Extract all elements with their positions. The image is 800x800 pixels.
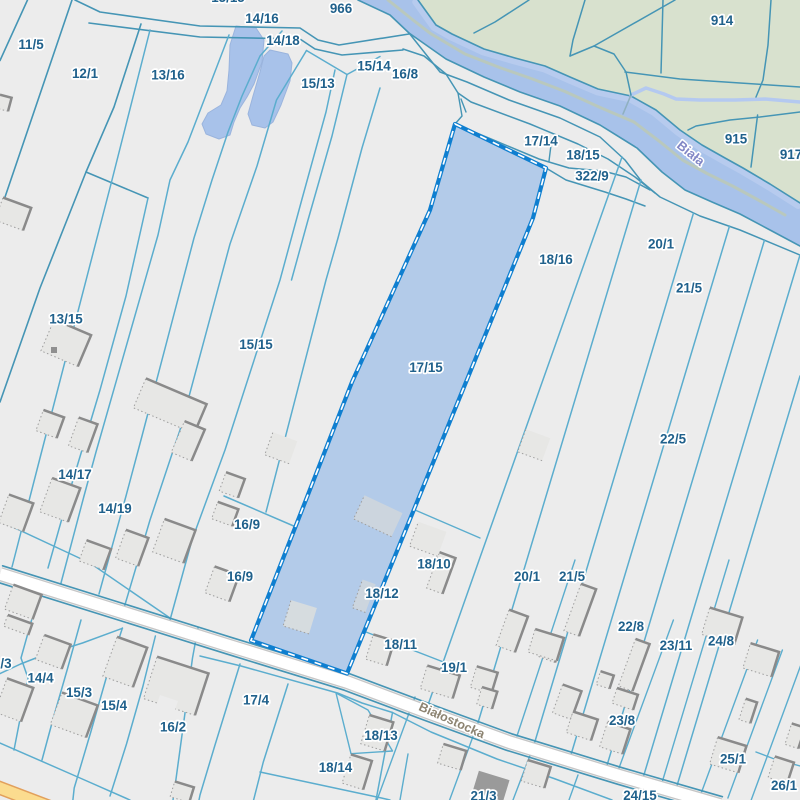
svg-text:20/1: 20/1 <box>648 236 675 251</box>
svg-text:16/2: 16/2 <box>160 719 186 734</box>
svg-text:16/8: 16/8 <box>392 66 419 81</box>
svg-text:24/8: 24/8 <box>708 633 735 648</box>
svg-text:18/10: 18/10 <box>417 556 451 571</box>
svg-text:19/1: 19/1 <box>441 660 468 675</box>
svg-text:11/5: 11/5 <box>18 37 44 52</box>
svg-text:14/19: 14/19 <box>98 501 132 516</box>
svg-text:914: 914 <box>711 13 734 28</box>
svg-text:21/3: 21/3 <box>470 788 496 800</box>
svg-text:16/9: 16/9 <box>227 569 253 584</box>
svg-text:17/14: 17/14 <box>524 133 558 148</box>
svg-text:23/11: 23/11 <box>660 638 693 653</box>
svg-text:18/13: 18/13 <box>364 728 398 743</box>
svg-text:23/8: 23/8 <box>609 713 636 728</box>
svg-text:915: 915 <box>725 131 748 146</box>
svg-text:966: 966 <box>330 1 352 16</box>
svg-text:14/4: 14/4 <box>27 670 54 685</box>
svg-text:14/16: 14/16 <box>245 11 279 26</box>
svg-text:25/1: 25/1 <box>720 751 747 766</box>
svg-text:14/18: 14/18 <box>266 33 300 48</box>
svg-text:17/15: 17/15 <box>409 360 443 375</box>
svg-text:22/5: 22/5 <box>660 431 687 446</box>
svg-text:26/1: 26/1 <box>771 778 798 793</box>
svg-text:22/8: 22/8 <box>618 619 645 634</box>
svg-text:21/5: 21/5 <box>676 280 703 295</box>
svg-text:15/15: 15/15 <box>239 337 273 352</box>
svg-text:18/12: 18/12 <box>365 586 399 601</box>
svg-text:15/4: 15/4 <box>101 698 128 713</box>
svg-text:917: 917 <box>780 147 800 162</box>
svg-text:/3: /3 <box>0 656 11 671</box>
svg-text:21/5: 21/5 <box>559 569 586 584</box>
svg-text:15/14: 15/14 <box>357 58 391 73</box>
svg-text:322/9: 322/9 <box>575 168 609 183</box>
svg-text:13/15: 13/15 <box>49 311 83 326</box>
svg-text:13/16: 13/16 <box>151 67 185 82</box>
svg-text:18/15: 18/15 <box>566 147 600 162</box>
svg-text:12/1: 12/1 <box>72 66 99 81</box>
svg-text:14/17: 14/17 <box>58 467 92 482</box>
svg-text:15/3: 15/3 <box>66 685 92 700</box>
svg-text:15/15: 15/15 <box>211 0 245 5</box>
svg-text:18/16: 18/16 <box>539 252 573 267</box>
svg-text:18/14: 18/14 <box>319 760 353 775</box>
svg-text:15/13: 15/13 <box>301 76 335 91</box>
svg-text:18/11: 18/11 <box>384 637 417 652</box>
svg-text:24/15: 24/15 <box>623 788 657 800</box>
svg-text:16/9: 16/9 <box>234 517 260 532</box>
svg-text:20/1: 20/1 <box>514 569 541 584</box>
svg-text:17/4: 17/4 <box>243 692 270 707</box>
